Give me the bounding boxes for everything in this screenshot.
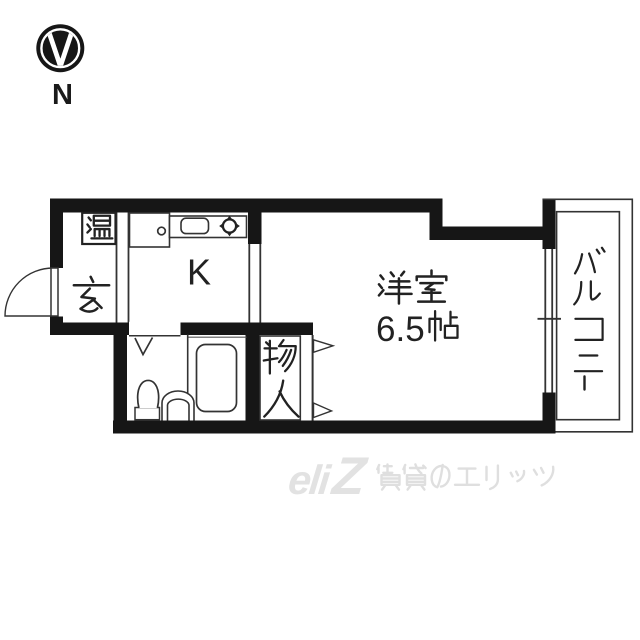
svg-text:N: N [52, 79, 73, 111]
svg-text:6.5: 6.5 [376, 310, 425, 349]
svg-text:K: K [187, 252, 211, 293]
